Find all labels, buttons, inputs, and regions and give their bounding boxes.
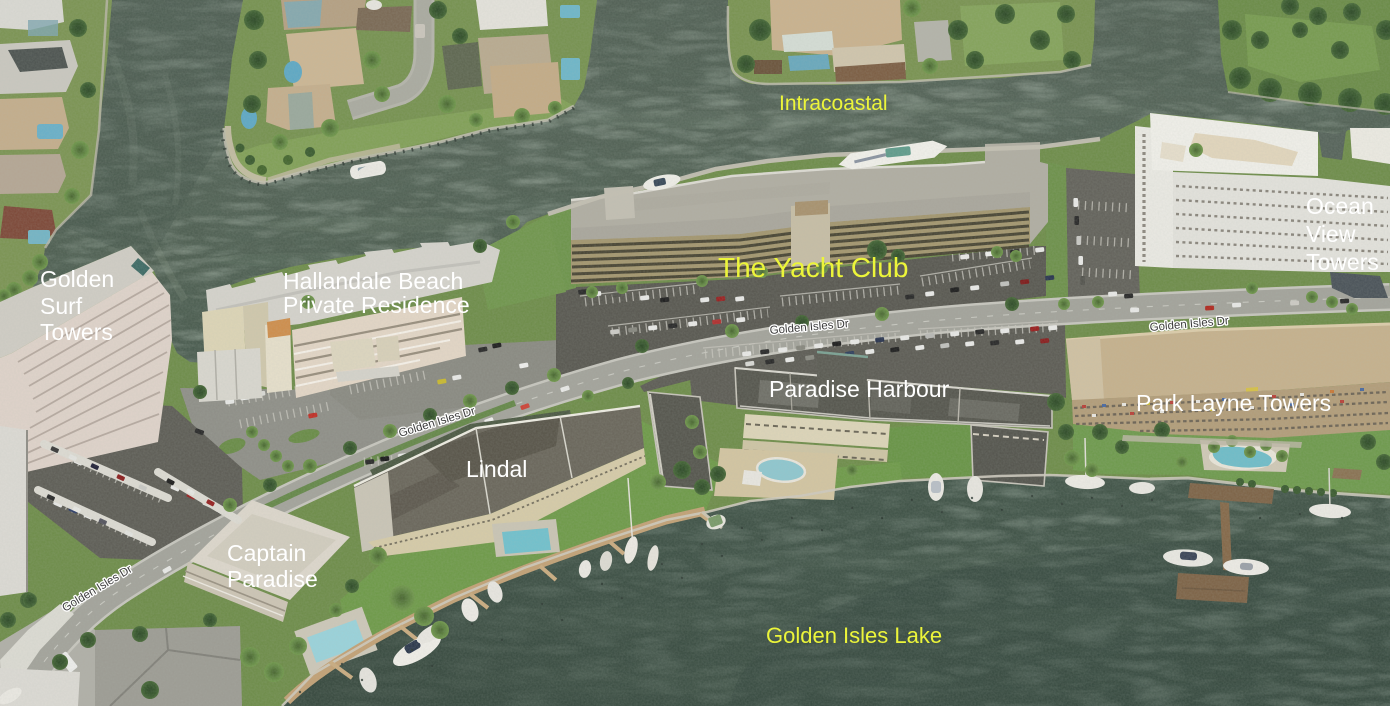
svg-text:Golden: Golden bbox=[40, 266, 114, 292]
svg-text:View: View bbox=[1306, 221, 1356, 247]
svg-text:Paradise: Paradise bbox=[227, 566, 318, 592]
svg-text:Ocean: Ocean bbox=[1306, 193, 1374, 219]
svg-text:The Yacht Club: The Yacht Club bbox=[718, 252, 908, 283]
svg-text:Park Layne Towers: Park Layne Towers bbox=[1136, 390, 1331, 416]
svg-text:Intracoastal: Intracoastal bbox=[779, 92, 888, 115]
svg-text:Hallandale Beach: Hallandale Beach bbox=[283, 268, 463, 294]
svg-text:Surf: Surf bbox=[40, 293, 83, 319]
svg-text:Lindal: Lindal bbox=[466, 456, 527, 482]
svg-text:Towers: Towers bbox=[40, 319, 113, 345]
svg-text:Private Residence: Private Residence bbox=[283, 292, 470, 318]
svg-text:Towers: Towers bbox=[1306, 249, 1379, 275]
svg-text:Golden Isles Lake: Golden Isles Lake bbox=[766, 623, 942, 648]
svg-text:Paradise Harbour: Paradise Harbour bbox=[769, 376, 950, 402]
svg-text:Captain: Captain bbox=[227, 540, 306, 566]
